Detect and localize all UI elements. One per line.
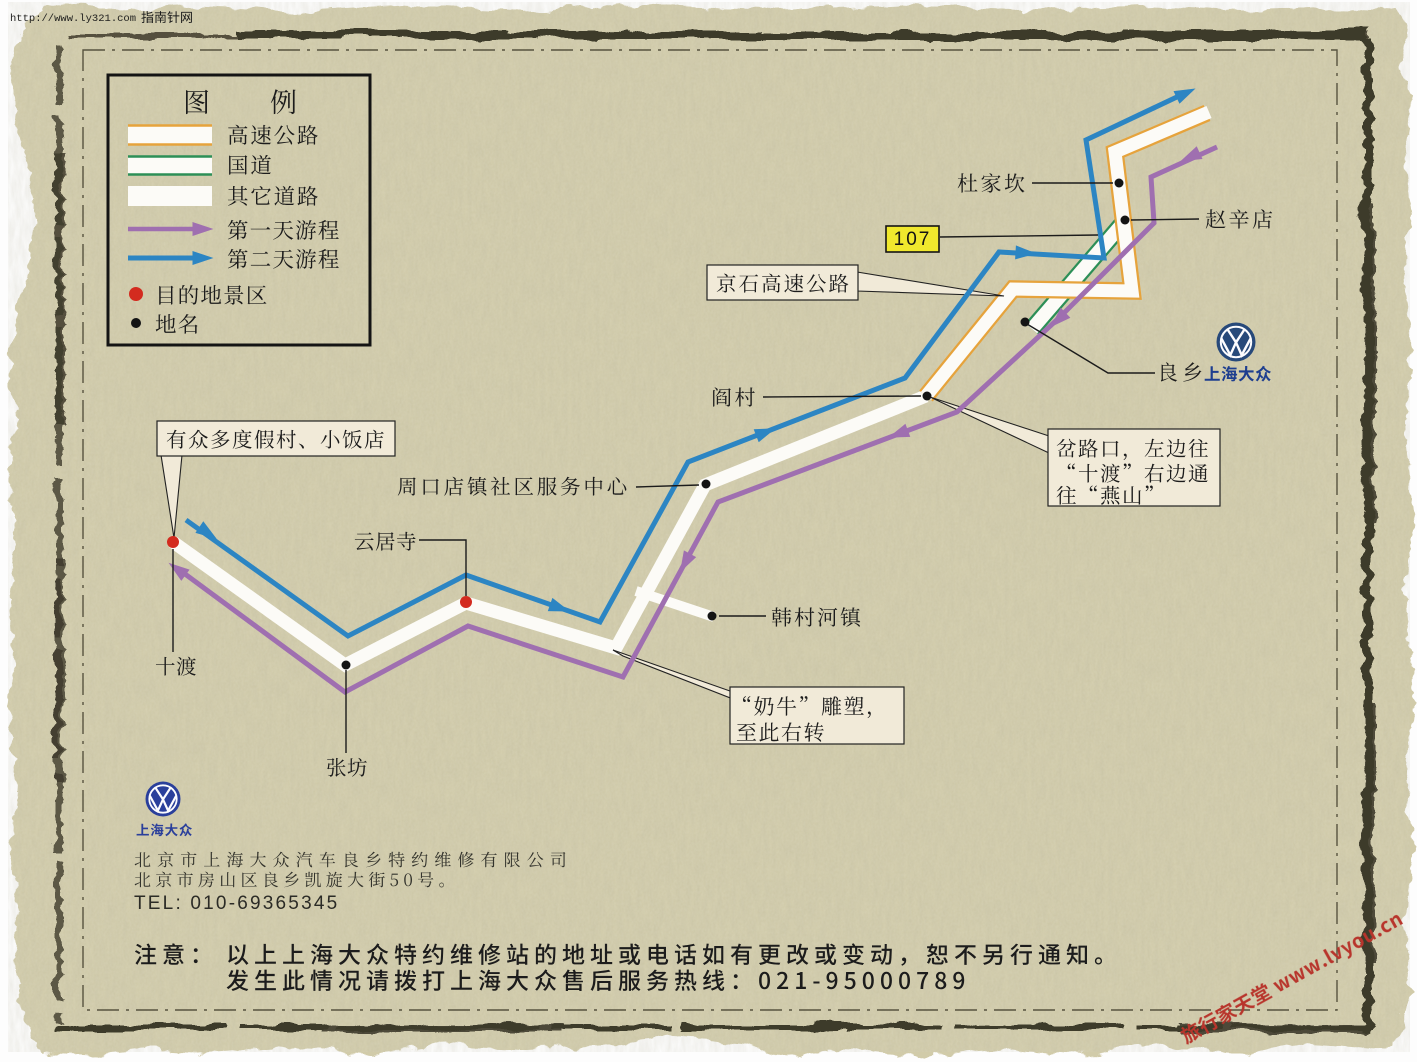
svg-text:107: 107 bbox=[894, 229, 932, 250]
svg-text:TEL: 010-69365345: TEL: 010-69365345 bbox=[134, 893, 339, 914]
svg-text:http://www.ly321.com: http://www.ly321.com bbox=[10, 13, 136, 25]
